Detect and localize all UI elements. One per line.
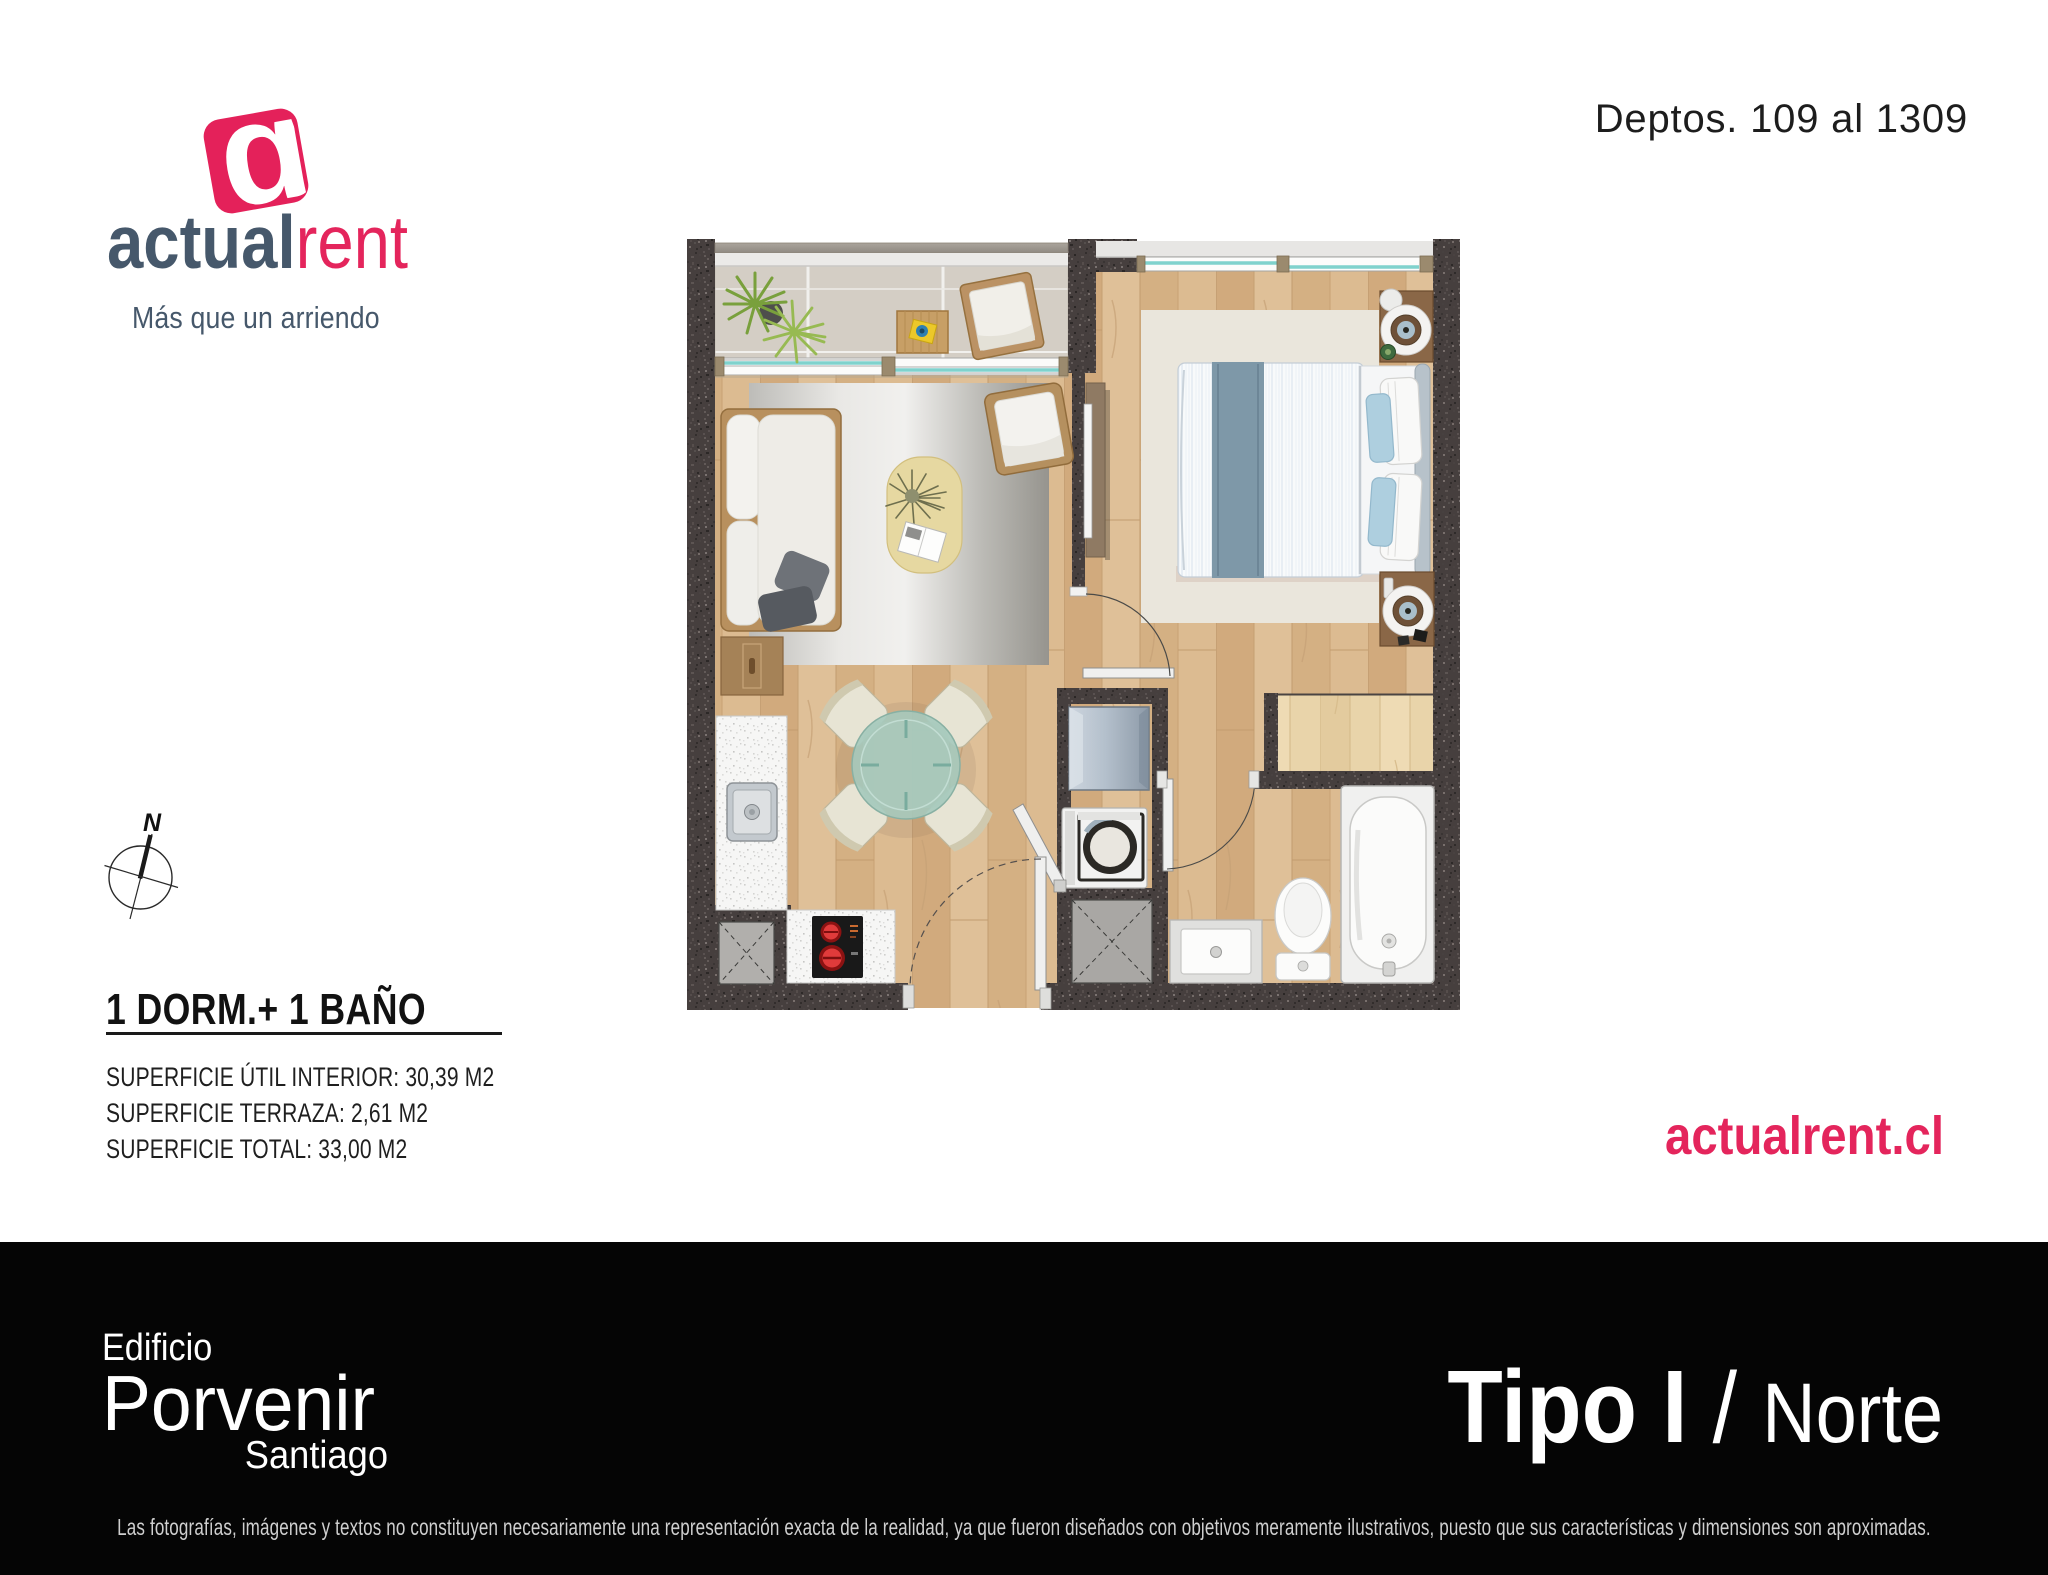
svg-text:N: N	[143, 809, 162, 837]
